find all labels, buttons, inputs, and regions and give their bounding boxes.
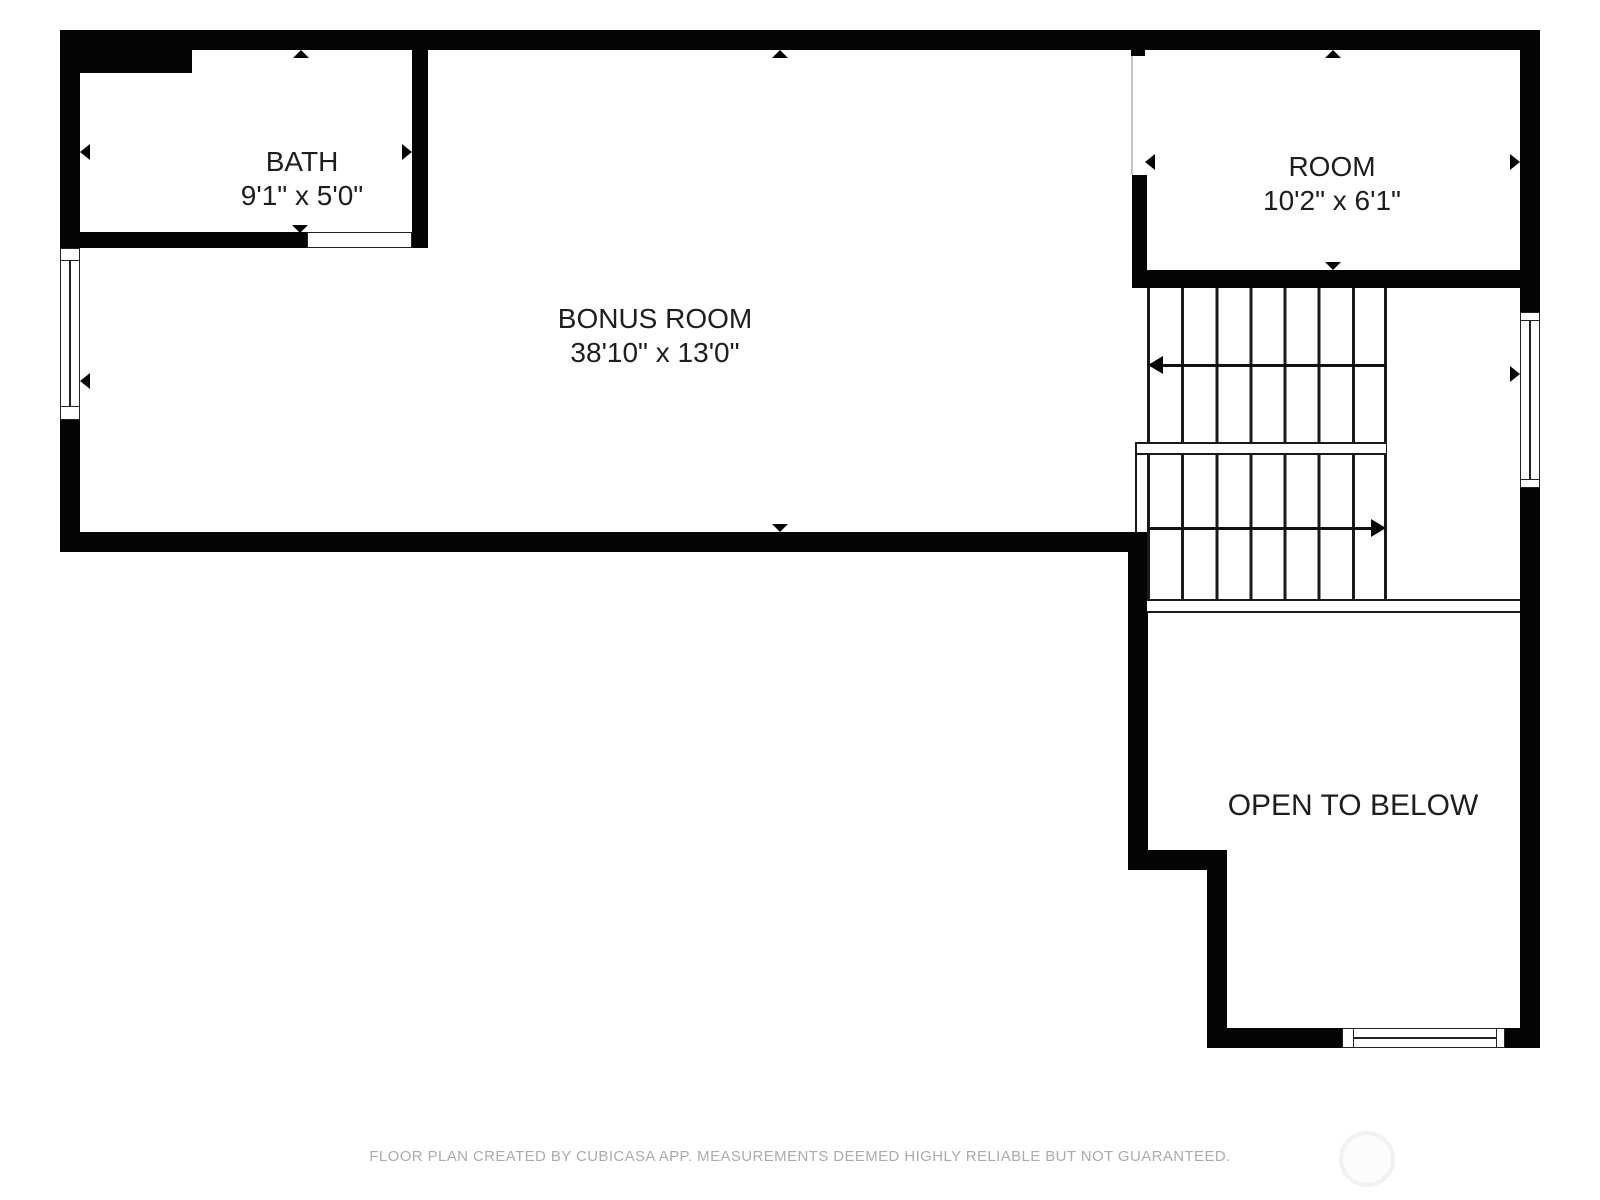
wall-right [1520,30,1540,1048]
bath-wall-right [412,50,428,248]
bath-dimensions: 9'1" x 5'0" [241,179,363,213]
wall-top [60,30,1540,50]
bath-marker-right-icon [402,144,412,160]
bonus-room-dimensions: 38'10" x 13'0" [558,336,752,370]
window-bottom-glass-line [1353,1037,1497,1039]
bonus-room-label-block: BONUS ROOM 38'10" x 13'0" [558,302,752,370]
open-below-wall-left [1207,870,1227,1048]
open-to-below-label-block: OPEN TO BELOW [1228,788,1479,824]
open-to-below-label: OPEN TO BELOW [1228,788,1479,824]
bonus-room-wall-bottom [60,532,1147,552]
bonus-marker-left-icon [80,373,90,389]
open-below-wall-jog [1128,850,1227,870]
room-marker-left-icon [1145,154,1155,170]
room-dimensions: 10'2" x 6'1" [1263,184,1401,218]
floorplan-canvas: BATH 9'1" x 5'0" ROOM 10'2" x 6'1" BONUS… [0,0,1600,1200]
room-door-opening [1131,56,1133,175]
bonus-marker-up-icon [772,50,788,58]
stair-edge-left [1135,444,1137,532]
room-label-block: ROOM 10'2" x 6'1" [1263,150,1401,218]
bath-marker-up-icon [293,50,309,58]
room-label: ROOM [1263,150,1401,184]
stair-arrow-right-icon [1371,519,1386,537]
bonus-room-label: BONUS ROOM [558,302,752,336]
window-right-glass-line [1529,320,1531,480]
stairwell-wall-left [1128,532,1148,850]
stair-arrow-lower-line [1148,527,1372,530]
window-left-glass-line [69,260,71,407]
stair-bottom-landing [1147,599,1520,613]
bonus-marker-down-icon [772,524,788,532]
bath-label-block: BATH 9'1" x 5'0" [241,145,363,213]
room-wall-bottom [1132,270,1520,288]
bath-label: BATH [241,145,363,179]
room-marker-up-icon [1325,50,1341,58]
bath-door-opening [307,232,412,248]
cubicasa-logo-circle [1339,1131,1395,1187]
room-marker-down-icon [1325,262,1341,270]
room-door-stub [1131,50,1145,56]
stair-flight-lower [1147,453,1386,599]
stair-mid-landing [1135,442,1386,455]
bath-marker-left-icon [80,144,90,160]
bonus-marker-right-icon [1510,366,1520,382]
room-marker-right-icon [1510,154,1520,170]
bath-wall-bottom [60,232,307,248]
stair-arrow-upper-line [1162,364,1386,367]
stair-arrow-left-icon [1148,356,1163,374]
bath-marker-down-icon [292,225,308,233]
bath-corner-notch [60,50,192,73]
